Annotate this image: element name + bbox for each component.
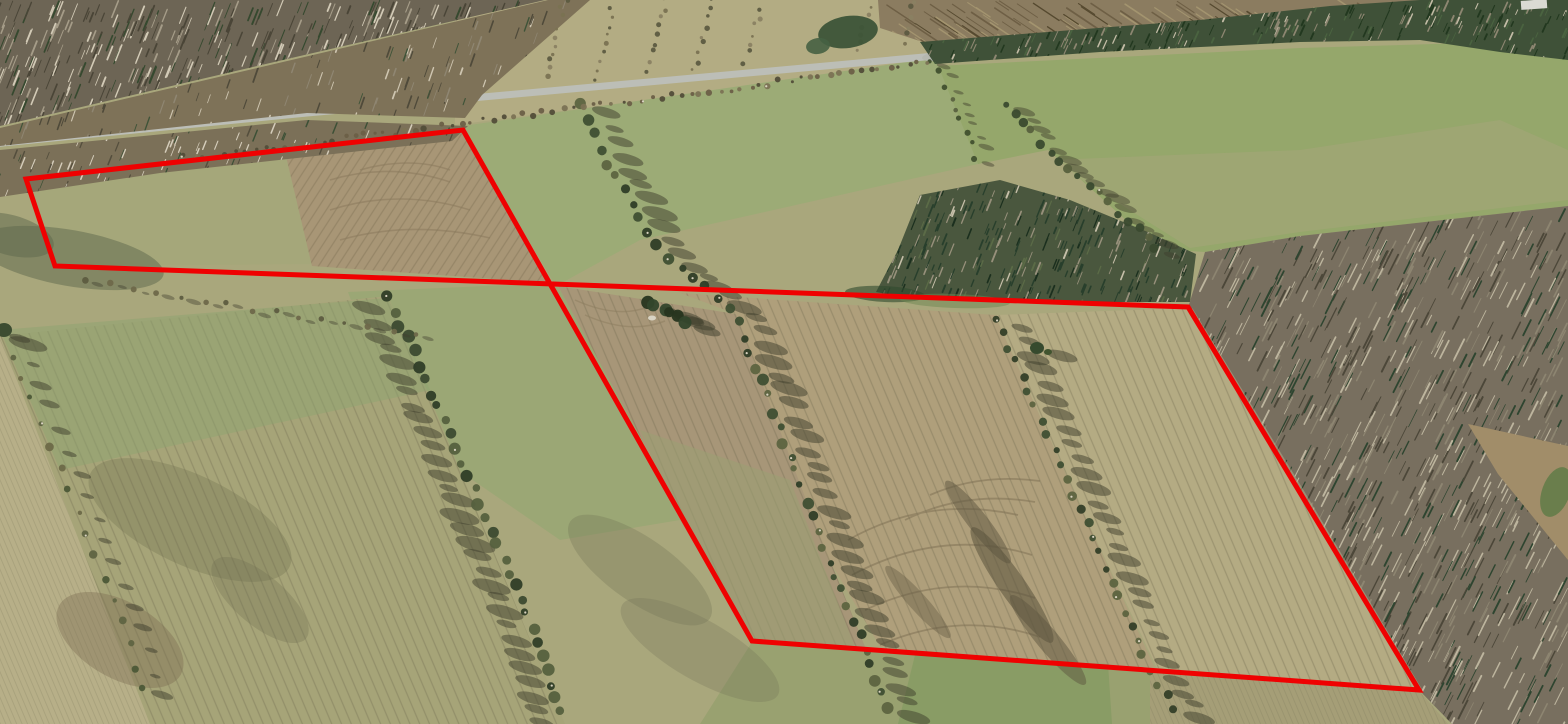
hedgerow-tree: [491, 118, 497, 124]
hedgerow-tree: [1104, 197, 1112, 205]
hedgerow-tree: [679, 265, 686, 272]
hedgerow-tree: [1048, 150, 1055, 157]
hedgerow-tree: [1000, 328, 1008, 336]
hedgerow-tree: [529, 624, 540, 635]
hedgerow-tree: [609, 102, 613, 106]
hedgerow-tree: [663, 8, 668, 13]
hedgerow-tree: [815, 74, 820, 79]
hedgerow-tree: [179, 296, 183, 300]
hedgerow-tree: [756, 83, 760, 87]
hedgerow-tree: [837, 584, 845, 592]
hedgerow-tree: [1054, 447, 1060, 453]
hedgerow-tree: [502, 114, 507, 119]
hedgerow-tree: [555, 28, 558, 31]
hedgerow-tree: [896, 65, 899, 68]
hedgerow-tree: [621, 184, 630, 193]
hedgerow-tree: [656, 22, 661, 27]
hedgerow-tree: [803, 498, 815, 510]
hedgerow-tree: [583, 114, 594, 125]
hedgerow-tree: [748, 43, 752, 47]
hedgerow-tree: [925, 61, 929, 65]
hedgerow-tree: [449, 443, 461, 455]
hedgerow-tree: [1036, 140, 1045, 149]
hedgerow-tree: [402, 128, 407, 133]
hedgerow-tree: [502, 556, 511, 565]
hedgerow-tree: [908, 4, 913, 9]
hedgerow-tree: [511, 114, 516, 119]
hedgerow-tree: [593, 78, 596, 81]
hedgerow-tree: [849, 617, 858, 626]
hedgerow-tree: [598, 101, 602, 105]
hedgerow-tree: [651, 95, 655, 99]
hedgerow-tree: [518, 596, 527, 605]
tree-trunk-speck: [879, 691, 881, 693]
hedgerow-tree: [537, 649, 549, 661]
hedgerow-tree: [1169, 705, 1177, 713]
hedgerow-tree: [432, 401, 440, 409]
hedgerow-tree: [265, 145, 269, 149]
hedgerow-tree: [132, 666, 139, 673]
hedgerow-tree: [451, 124, 454, 127]
hedgerow-tree: [867, 13, 871, 17]
hedgerow-tree: [131, 286, 137, 292]
hedgerow-tree: [791, 80, 794, 83]
hedgerow-tree: [764, 390, 771, 397]
hedgerow-tree: [446, 428, 457, 439]
tree-trunk-speck: [746, 352, 748, 354]
hedgerow-tree: [790, 465, 796, 471]
tree-trunk-speck: [766, 393, 768, 395]
tree-trunk-speck: [1115, 596, 1117, 598]
hedgerow-tree: [993, 316, 1000, 323]
hedgerow-tree: [818, 544, 826, 552]
hedgerow-tree: [714, 294, 723, 303]
hedgerow-tree: [442, 416, 450, 424]
tree-trunk-speck: [642, 100, 644, 102]
hedgerow-tree: [538, 108, 544, 114]
tree-trunk-speck: [996, 319, 998, 321]
tree-trunk-speck: [667, 258, 669, 260]
hedgerow-tree: [601, 160, 611, 170]
hedgerow-tree: [589, 127, 599, 137]
hedgerow-tree: [1041, 430, 1050, 439]
hedgerow-tree: [480, 513, 489, 522]
hedgerow-tree: [775, 76, 781, 82]
tree-trunk-speck: [1098, 189, 1100, 191]
hedgerow-tree: [800, 75, 803, 78]
hedgerow-tree: [789, 454, 796, 461]
hedgerow-tree: [1153, 682, 1161, 690]
hedgerow-tree: [936, 67, 942, 73]
hedgerow-tree: [580, 104, 586, 110]
tree-trunk-speck: [790, 457, 792, 459]
hedgerow-tree: [597, 146, 607, 156]
tree-trunk-speck: [85, 534, 87, 536]
hedgerow-tree: [865, 659, 874, 668]
hedgerow-tree: [680, 93, 685, 98]
hedgerow-tree: [381, 131, 384, 134]
hedgerow-tree: [78, 511, 82, 515]
hedgerow-tree: [751, 86, 755, 90]
tree-trunk-speck: [181, 155, 183, 157]
hedgerow-tree: [951, 97, 956, 102]
hedgerow-tree: [153, 290, 159, 296]
hedgerow-tree: [439, 122, 444, 127]
hedgerow-tree: [572, 106, 575, 109]
hedgerow-tree: [519, 110, 525, 116]
hedgerow-tree: [1114, 211, 1121, 218]
hedgerow-tree: [942, 85, 948, 91]
hedgerow-tree: [869, 67, 875, 73]
hedgerow-tree: [679, 316, 692, 329]
hedgerow-tree: [906, 27, 909, 30]
hedgerow-tree: [27, 394, 32, 399]
tree-trunk-speck: [765, 85, 767, 87]
hedgerow-tree: [842, 602, 850, 610]
tree-trunk-speck: [524, 611, 526, 613]
hedgerow-tree: [373, 132, 376, 135]
hedgerow-tree: [1112, 590, 1122, 600]
hedgerow-tree: [1136, 650, 1145, 659]
hedgerow-tree: [1149, 244, 1158, 253]
hedgerow-tree: [690, 92, 694, 96]
hedgerow-tree: [611, 171, 619, 179]
hedgerow-tree: [650, 239, 662, 251]
hedgerow-tree: [708, 6, 713, 11]
hedgerow-tree: [59, 465, 66, 472]
hedgerow-tree: [64, 486, 71, 493]
hedgerow-tree: [602, 50, 606, 54]
hedgerow-tree: [730, 90, 734, 94]
hedgerow-tree: [808, 74, 813, 79]
hedgerow-tree: [882, 702, 894, 714]
hedgerow-tree: [471, 498, 484, 511]
hedgerow-tree: [1063, 475, 1072, 484]
hedgerow-tree: [1095, 548, 1101, 554]
hedgerow-tree: [869, 675, 881, 687]
hedgerow-tree: [912, 0, 916, 4]
hedgerow-tree: [420, 125, 426, 131]
hedgerow-tree: [561, 13, 565, 17]
hedgerow-tree: [250, 309, 256, 315]
hedgerow-tree: [695, 91, 701, 97]
hedgerow-tree: [828, 72, 834, 78]
hedgerow-tree: [473, 484, 481, 492]
hedgerow-tree: [556, 706, 565, 715]
hedgerow-tree: [604, 41, 609, 46]
tree-trunk-speck: [1138, 640, 1140, 642]
hedgerow-tree: [700, 36, 703, 39]
hedgerow-tree: [741, 335, 748, 342]
hedgerow-tree: [630, 201, 637, 208]
hedgerow-tree: [1164, 690, 1173, 699]
hedgerow-tree: [777, 438, 788, 449]
hedgerow-tree: [904, 30, 909, 35]
hedgerow-tree: [659, 14, 663, 18]
tree-trunk-speck: [1092, 536, 1094, 538]
hedgerow-tree: [1129, 622, 1137, 630]
hedgerow-tree: [849, 68, 855, 74]
hedgerow-tree: [1020, 373, 1029, 382]
hedgerow-tree: [1074, 173, 1080, 179]
hedgerow-tree: [102, 576, 109, 583]
hedgerow-tree: [545, 74, 550, 79]
hedgerow-tree: [706, 90, 712, 96]
hedgerow-tree: [767, 408, 778, 419]
hedgerow-tree: [809, 511, 819, 521]
hedgerow-tree: [223, 300, 228, 305]
tree-trunk-speck: [691, 277, 693, 279]
hedgerow-tree: [796, 481, 802, 487]
hedgerow-tree: [696, 50, 700, 54]
hedgerow-tree: [836, 70, 842, 76]
hedgerow-tree: [909, 15, 914, 20]
hedgerow-tree: [1012, 109, 1021, 118]
hedgerow-tree: [354, 133, 359, 138]
hedgerow-tree: [608, 26, 611, 29]
hedgerow-tree: [128, 640, 134, 646]
hedgerow-tree: [488, 527, 499, 538]
hedgerow-tree: [633, 212, 643, 222]
hedgerow-tree: [914, 60, 918, 64]
hedgerow-tree: [691, 68, 694, 71]
hedgerow-tree: [611, 16, 614, 19]
hedgerow-tree: [750, 364, 760, 374]
hedgerow-tree: [669, 91, 674, 96]
hedgerow-tree: [319, 316, 324, 321]
hedgerow-tree: [1124, 217, 1133, 226]
hedgerow-tree: [815, 528, 822, 535]
hedgerow-tree: [725, 304, 735, 314]
hedgerow-tree: [1089, 535, 1096, 542]
hedgerow-tree: [859, 68, 865, 74]
lone-tree: [1030, 342, 1044, 354]
hedgerow-tree: [113, 598, 117, 602]
hedgerow-tree: [752, 21, 756, 25]
hedgerow-tree: [598, 60, 601, 63]
hedgerow-tree: [554, 45, 557, 48]
hedgerow-tree: [18, 376, 23, 381]
hedgerow-tree: [909, 62, 913, 66]
hedgerow-tree: [1084, 518, 1093, 527]
hedgerow-tree: [644, 70, 648, 74]
hedgerow-tree: [758, 16, 763, 21]
hedgerow-tree: [551, 53, 554, 56]
hedgerow-tree: [737, 87, 741, 91]
hedgerow-tree: [870, 6, 873, 9]
hedgerow-tree: [1122, 610, 1129, 617]
hedgerow-tree: [532, 637, 543, 648]
hedgerow-tree: [1039, 418, 1047, 426]
hedgerow-tree: [139, 685, 145, 691]
hedgerow-tree: [606, 33, 609, 36]
hedgerow-tree: [1109, 579, 1118, 588]
hedgerow-tree: [596, 69, 599, 72]
hedgerow-tree: [414, 332, 419, 337]
hedgerow-tree: [1054, 157, 1063, 166]
hedgerow-tree: [706, 14, 710, 18]
hedgerow-tree: [468, 121, 471, 124]
hedgerow-tree: [903, 42, 907, 46]
tree-trunk-speck: [1070, 496, 1072, 498]
hedgerow-tree: [1063, 164, 1072, 173]
hedgerow-tree: [747, 48, 752, 53]
hedgerow-tree: [592, 102, 596, 106]
hedgerow-tree: [547, 56, 552, 61]
hedgerow-tree: [460, 121, 466, 127]
hedgerow-tree: [548, 65, 553, 70]
hedgerow-tree: [107, 280, 114, 287]
hedgerow-tree: [203, 300, 209, 306]
hedgerow-tree: [751, 35, 754, 38]
hedgerow-tree: [623, 101, 626, 104]
hedgerow-tree: [740, 61, 745, 66]
hedgerow-tree: [971, 156, 977, 162]
aerial-photo-stage: [0, 0, 1568, 724]
hedgerow-tree: [831, 574, 837, 580]
hedgerow-tree: [391, 308, 401, 318]
hedgerow-tree: [1057, 461, 1064, 468]
hedgerow-tree: [956, 115, 961, 120]
hedgerow-tree: [119, 617, 127, 625]
hedgerow-tree: [1019, 118, 1028, 127]
hedgerow-tree: [701, 39, 706, 44]
hedgerow-tree: [1145, 233, 1153, 241]
hedgerow-tree: [1003, 345, 1011, 353]
tree-trunk-speck: [385, 295, 387, 297]
hedgerow-tree: [735, 316, 744, 325]
hedgerow-tree: [409, 344, 421, 356]
hedgerow-tree: [828, 560, 834, 566]
hedgerow-tree: [344, 134, 348, 138]
hedgerow-tree: [1026, 126, 1034, 134]
hedgerow-tree: [1136, 223, 1145, 232]
hedgerow-tree: [953, 108, 958, 113]
hedgerow-tree: [1103, 566, 1109, 572]
tree-trunk-speck: [646, 232, 648, 234]
hedgerow-tree: [562, 105, 568, 111]
hedgerow-tree: [481, 117, 484, 120]
hedgerow-tree: [10, 355, 16, 361]
hedgerow-tree: [1077, 505, 1086, 514]
hedgerow-tree: [45, 443, 54, 452]
hedgerow-tree: [89, 550, 97, 558]
hedgerow-tree: [647, 299, 659, 311]
hedgerow-tree: [420, 374, 430, 384]
tree-trunk-speck: [819, 529, 821, 531]
hedgerow-tree: [542, 663, 554, 675]
rock-pile-speck: [648, 316, 656, 321]
hedgerow-tree: [778, 423, 785, 430]
hedgerow-tree: [1029, 401, 1035, 407]
hedgerow-tree: [608, 6, 612, 10]
tree-trunk-speck: [551, 684, 553, 686]
hedgerow-tree: [651, 48, 656, 53]
hedgerow-tree: [1003, 102, 1009, 108]
hedgerow-tree: [505, 570, 514, 579]
hedgerow-tree: [856, 49, 859, 52]
hedgerow-tree: [659, 96, 665, 102]
hedgerow-tree: [1086, 182, 1094, 190]
hedgerow-tree: [361, 131, 366, 136]
hedgerow-tree: [720, 90, 724, 94]
hedgerow-tree: [234, 149, 238, 153]
hedgerow-tree: [655, 31, 660, 36]
hedgerow-tree: [970, 140, 974, 144]
hedgerow-tree: [627, 101, 632, 106]
hedgerow-tree: [558, 5, 562, 9]
hedgerow-tree: [889, 65, 895, 71]
hedgerow-tree: [965, 130, 971, 136]
hedgerow-tree: [510, 578, 522, 590]
hedgerow-tree: [857, 629, 867, 639]
terrain-layers: [0, 0, 1568, 724]
hedgerow-tree: [696, 61, 701, 66]
hedgerow-tree: [490, 537, 501, 548]
hedgerow-tree: [426, 391, 436, 401]
hedgerow-tree: [530, 113, 536, 119]
hedgerow-tree: [391, 329, 397, 335]
hedgerow-tree: [274, 308, 279, 313]
hedgerow-tree: [413, 361, 425, 373]
hedgerow-tree: [1012, 356, 1019, 363]
lone-tree-2: [1044, 349, 1052, 355]
hedgerow-tree: [548, 691, 560, 703]
hedgerow-tree: [653, 43, 657, 47]
hedgerow-tree: [82, 277, 89, 284]
hedgerow-tree: [365, 323, 371, 329]
hedgerow-tree: [648, 60, 652, 64]
hedgerow-tree: [757, 8, 761, 12]
hedgerow-tree: [704, 25, 710, 31]
aerial-photo: [0, 0, 1568, 724]
hedgerow-tree: [301, 141, 305, 145]
tree-trunk-speck: [454, 449, 456, 451]
hedgerow-tree: [457, 460, 465, 468]
hedgerow-tree: [757, 374, 769, 386]
tree-trunk-speck: [718, 297, 720, 299]
hedgerow-tree: [461, 470, 473, 482]
hedgerow-tree: [875, 67, 879, 71]
hedgerow-tree: [549, 109, 555, 115]
hedgerow-tree: [553, 36, 558, 41]
hedgerow-tree: [1023, 388, 1031, 396]
hedgerow-tree: [342, 321, 346, 325]
tree-trunk-speck: [41, 422, 43, 424]
hedgerow-tree: [296, 316, 301, 321]
